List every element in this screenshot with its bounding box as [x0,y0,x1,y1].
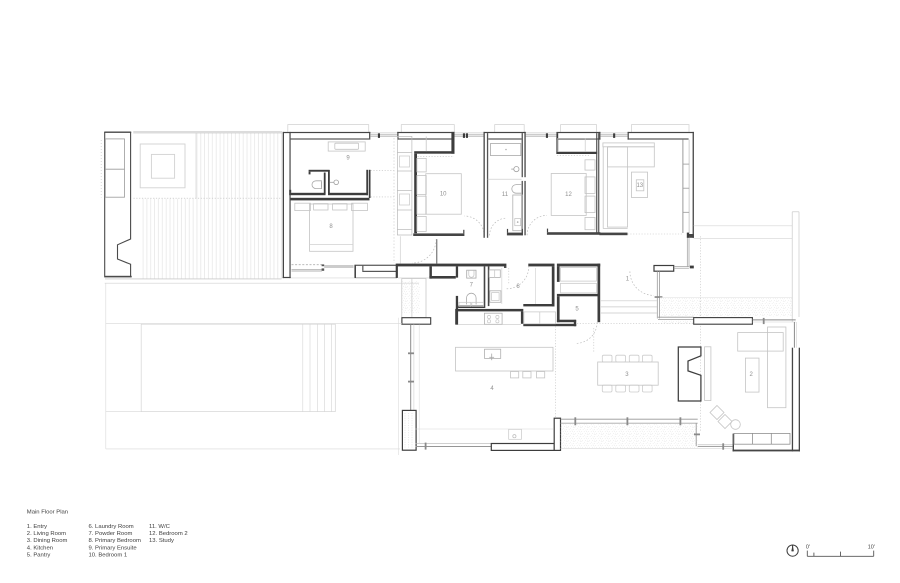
svg-text:10': 10' [868,545,875,551]
svg-text:2. Living Room: 2. Living Room [27,531,66,537]
svg-text:9. Primary Ensuite: 9. Primary Ensuite [89,545,138,551]
svg-text:12: 12 [565,192,572,198]
svg-text:10: 10 [440,191,447,197]
svg-text:10. Bedroom 1: 10. Bedroom 1 [89,552,128,558]
svg-text:11. W/C: 11. W/C [149,524,171,530]
svg-text:1. Entry: 1. Entry [27,524,47,530]
svg-text:Main Floor Plan: Main Floor Plan [27,510,68,516]
svg-text:3. Dining Room: 3. Dining Room [27,538,68,544]
svg-text:5. Pantry: 5. Pantry [27,552,51,558]
svg-text:7. Powder Room: 7. Powder Room [89,531,133,537]
svg-text:13: 13 [636,183,643,189]
svg-text:4. Kitchen: 4. Kitchen [27,545,53,551]
svg-text:6. Laundry Room: 6. Laundry Room [89,524,134,530]
svg-text:13. Study: 13. Study [149,538,174,544]
svg-text:11: 11 [502,192,509,198]
svg-text:12. Bedroom 2: 12. Bedroom 2 [149,531,188,537]
svg-text:0': 0' [806,545,810,551]
svg-text:8. Primary Bedroom: 8. Primary Bedroom [89,538,141,544]
